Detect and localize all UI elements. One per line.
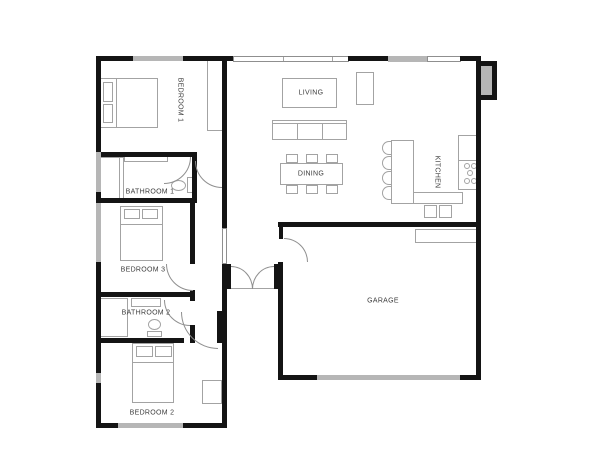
pillow	[136, 346, 153, 357]
window	[388, 56, 427, 62]
wardrobe	[202, 380, 222, 404]
dining-chair	[306, 185, 318, 194]
wall-bathroom2-bedroom2	[101, 338, 184, 343]
bed-fold-line	[116, 79, 117, 127]
bar-stool	[382, 156, 391, 170]
window-mullion	[332, 57, 333, 61]
shower-screen-line	[119, 157, 120, 202]
wardrobe-line	[207, 61, 208, 130]
window	[118, 423, 183, 428]
room-label-living: LIVING	[299, 90, 324, 97]
window	[96, 373, 101, 383]
door-swing-arc	[181, 312, 218, 349]
wall-east	[476, 61, 481, 378]
pillow	[142, 209, 158, 219]
wall-bathroom1-east	[192, 152, 197, 203]
wall-wing-left	[96, 262, 101, 373]
counter-divider-line	[458, 160, 478, 161]
pillow	[155, 346, 172, 357]
floor-plan: BEDROOM 1 BATHROOM 1 BEDROOM 3 BATHROOM …	[0, 0, 600, 450]
wall-wing-bottom	[96, 423, 118, 428]
window	[133, 56, 183, 61]
cooktop-burner	[464, 178, 470, 184]
cooktop-burner	[464, 163, 470, 169]
kitchen-bench	[413, 192, 463, 204]
window	[427, 56, 461, 62]
dining-chair	[326, 154, 338, 163]
wall-garage-bottom	[460, 375, 481, 380]
workbench	[415, 229, 477, 243]
door-panel-garage	[279, 227, 283, 239]
tv-cabinet	[356, 72, 374, 105]
room-label-kitchen: KITCHEN	[434, 156, 441, 189]
room-label-dining: DINING	[298, 171, 324, 178]
wall-wing-left	[96, 383, 101, 428]
room-label-bedroom2: BEDROOM 2	[130, 410, 175, 417]
sofa-back-line	[273, 123, 346, 124]
wall-bedroom3-bathroom2	[101, 292, 195, 297]
room-label-garage: GARAGE	[367, 298, 399, 305]
bar-stool	[382, 171, 391, 185]
pillow	[103, 104, 113, 123]
entry-door-panel	[274, 264, 278, 289]
bed-fold-line	[132, 362, 174, 363]
hall-opening-jamb	[222, 228, 227, 264]
wall-wing-top	[96, 56, 133, 61]
bed-fold-line	[120, 224, 163, 225]
wall-bathroom1-bedroom3	[101, 198, 197, 203]
window	[96, 152, 101, 192]
dining-chair	[286, 185, 298, 194]
wall-wing-left	[96, 56, 101, 152]
dining-chair	[286, 154, 298, 163]
toilet-cistern	[147, 331, 162, 337]
window-mullion	[283, 57, 284, 61]
room-label-bathroom2: BATHROOM 2	[122, 310, 171, 317]
sofa-cushion-line	[322, 123, 323, 139]
door-swing-arc	[231, 266, 253, 289]
room-label-bedroom3: BEDROOM 3	[121, 267, 166, 274]
wall-garage-bottom	[278, 375, 317, 380]
fireplace	[481, 66, 492, 95]
wall-bathroom2-east	[190, 297, 195, 301]
sink-basin	[439, 205, 452, 218]
wall-garage-top	[278, 222, 481, 227]
wall-bedroom3-east	[190, 203, 195, 264]
kitchen-island	[391, 140, 414, 204]
dining-chair	[326, 185, 338, 194]
garage-door	[317, 375, 460, 380]
sofa-cushion-line	[297, 123, 298, 139]
wardrobe-line	[207, 130, 223, 131]
wall-wing-bottom	[183, 423, 227, 428]
bar-stool	[382, 141, 391, 155]
shower	[100, 157, 124, 202]
pillow	[124, 209, 140, 219]
wall-living-top	[348, 56, 389, 61]
shower	[100, 298, 128, 337]
vanity	[131, 298, 161, 307]
wall-fireplace-bump	[481, 95, 497, 100]
door-swing-arc	[252, 266, 274, 289]
dining-chair	[306, 154, 318, 163]
door-swing-arc	[284, 238, 308, 262]
pillow	[103, 82, 113, 102]
wall-wing-east	[222, 56, 227, 228]
bar-stool	[382, 186, 391, 200]
toilet-bowl	[148, 319, 161, 330]
cooktop-burner	[467, 170, 473, 176]
window	[96, 203, 101, 262]
door-swing-arc	[166, 264, 193, 291]
room-label-bedroom1: BEDROOM 1	[177, 78, 184, 123]
room-label-bathroom1: BATHROOM 1	[126, 189, 175, 196]
sink-basin	[424, 205, 437, 218]
door-swing-arc	[195, 161, 222, 188]
wall-garage-left	[278, 262, 283, 380]
